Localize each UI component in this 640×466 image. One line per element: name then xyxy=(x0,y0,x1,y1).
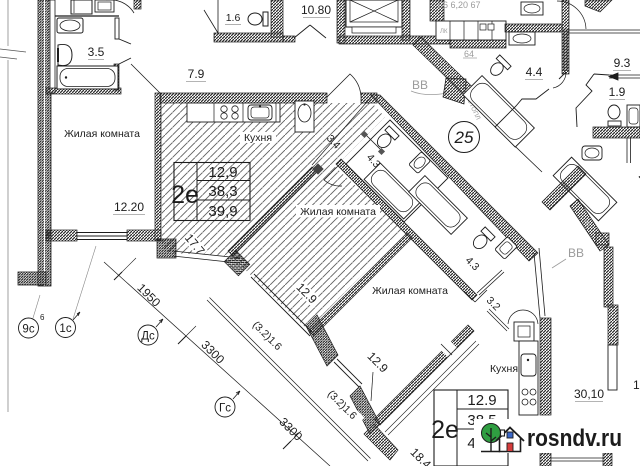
svg-text:2е: 2е xyxy=(431,416,459,444)
svg-text:9.3: 9.3 xyxy=(614,56,631,70)
svg-text:12,9: 12,9 xyxy=(208,164,237,181)
svg-text:1с: 1с xyxy=(59,323,71,335)
svg-text:30,10: 30,10 xyxy=(574,387,604,401)
svg-text:1.6: 1.6 xyxy=(226,12,241,24)
svg-text:ЛК: ЛК xyxy=(440,29,448,35)
svg-text:2е: 2е xyxy=(171,181,199,209)
svg-text:9с: 9с xyxy=(22,324,34,336)
svg-text:10.80: 10.80 xyxy=(301,3,331,17)
svg-text:4.4: 4.4 xyxy=(526,65,543,79)
svg-text:3.5: 3.5 xyxy=(88,45,105,59)
svg-text:Жилая комната: Жилая комната xyxy=(300,206,376,218)
svg-text:Жилая комната: Жилая комната xyxy=(64,128,140,140)
svg-text:rosndv.ru: rosndv.ru xyxy=(527,425,622,452)
svg-text:10,: 10, xyxy=(633,378,640,392)
svg-text:38,3: 38,3 xyxy=(208,183,237,200)
svg-text:Кухня: Кухня xyxy=(244,132,272,144)
svg-text:12.9: 12.9 xyxy=(467,392,496,409)
svg-text:ВВ: ВВ xyxy=(412,78,428,92)
svg-text:12.20: 12.20 xyxy=(114,200,144,214)
svg-text:39,9: 39,9 xyxy=(208,203,237,220)
svg-text:25: 25 xyxy=(454,128,474,147)
svg-text:1.9: 1.9 xyxy=(609,85,626,99)
svg-text:Кухня: Кухня xyxy=(490,363,518,375)
svg-text:Гс: Гс xyxy=(219,403,231,415)
svg-text:Дс: Дс xyxy=(141,331,155,343)
svg-text:7.9: 7.9 xyxy=(188,67,205,81)
svg-text:ВВ: ВВ xyxy=(568,246,584,260)
svg-text:Жилая комната: Жилая комната xyxy=(372,285,448,297)
svg-text:64: 64 xyxy=(464,49,474,59)
svg-text:66 6,20 67: 66 6,20 67 xyxy=(438,0,481,10)
svg-text:6: 6 xyxy=(40,313,45,322)
